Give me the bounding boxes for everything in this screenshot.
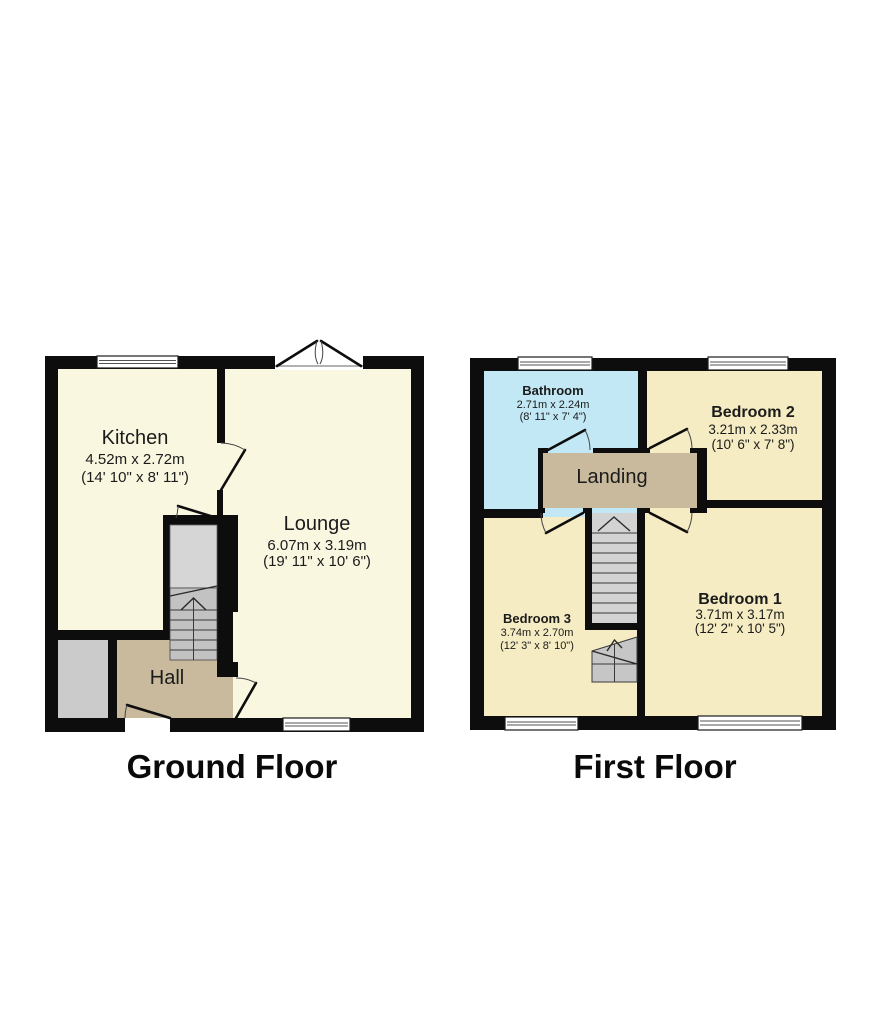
wall xyxy=(470,509,543,518)
kitchen-window-icon xyxy=(97,356,178,368)
wall xyxy=(217,515,238,612)
room-dims-kitchen-imperial: (14' 10" x 8' 11") xyxy=(81,469,189,486)
wall xyxy=(45,718,424,732)
ground-floor-title: Ground Floor xyxy=(127,748,338,785)
room-label-lounge: Lounge xyxy=(284,513,351,535)
room-label-landing: Landing xyxy=(576,466,647,488)
room-dims-bedroom2-metric: 3.21m x 2.33m xyxy=(708,422,797,437)
front-door-opening xyxy=(125,718,170,732)
ground-floor-plan: Kitchen 4.52m x 2.72m (14' 10" x 8' 11")… xyxy=(45,341,424,785)
room-label-bedroom3: Bedroom 3 xyxy=(503,611,571,626)
room-label-hall: Hall xyxy=(150,667,184,689)
wall xyxy=(585,508,592,630)
room-label-kitchen: Kitchen xyxy=(102,427,169,449)
ground-staircase xyxy=(170,525,217,660)
room-dims-bedroom3-imperial: (12' 3" x 8' 10") xyxy=(500,640,574,652)
floorplan-image: Kitchen 4.52m x 2.72m (14' 10" x 8' 11")… xyxy=(0,0,873,1017)
wall xyxy=(163,515,170,640)
room-dims-bedroom1-metric: 3.71m x 3.17m xyxy=(695,607,784,622)
understairs-cupboard xyxy=(170,525,217,588)
wall xyxy=(593,448,650,453)
bedroom2-window-icon xyxy=(708,357,788,370)
wall xyxy=(45,630,163,640)
wall xyxy=(822,358,836,730)
wall xyxy=(637,508,645,716)
wall xyxy=(697,500,836,508)
wall xyxy=(470,358,484,730)
bedroom1-window-icon xyxy=(698,716,802,730)
first-staircase xyxy=(592,513,637,623)
room-label-bedroom2: Bedroom 2 xyxy=(711,404,795,421)
wall xyxy=(217,369,225,443)
wall xyxy=(45,356,58,732)
room-dims-lounge-imperial: (19' 11" x 10' 6") xyxy=(263,553,371,570)
wall xyxy=(217,490,223,515)
wall xyxy=(217,662,238,677)
wall xyxy=(585,623,645,630)
wall xyxy=(108,640,117,718)
wall xyxy=(411,356,424,732)
room-dims-bedroom3-metric: 3.74m x 2.70m xyxy=(501,627,574,639)
room-dims-bedroom2-imperial: (10' 6" x 7' 8") xyxy=(711,437,794,452)
room-dims-kitchen-metric: 4.52m x 2.72m xyxy=(85,451,184,468)
bathroom-window-icon xyxy=(518,357,592,370)
store-floor xyxy=(58,640,108,718)
room-dims-bedroom1-imperial: (12' 2" x 10' 5") xyxy=(695,621,786,636)
wall xyxy=(697,448,707,508)
french-doors-opening xyxy=(275,355,363,370)
room-label-bathroom: Bathroom xyxy=(522,383,583,398)
room-label-bedroom1: Bedroom 1 xyxy=(698,591,782,608)
wall xyxy=(538,448,543,518)
floorplan-drawing: Kitchen 4.52m x 2.72m (14' 10" x 8' 11")… xyxy=(0,0,873,1017)
room-dims-bathroom-imperial: (8' 11" x 7' 4") xyxy=(520,411,587,423)
wall xyxy=(538,508,545,513)
first-floor-plan: Bathroom 2.71m x 2.24m (8' 11" x 7' 4") … xyxy=(470,357,836,785)
first-floor-title: First Floor xyxy=(573,748,736,785)
room-dims-lounge-metric: 6.07m x 3.19m xyxy=(267,537,366,554)
lounge-window-icon xyxy=(283,718,350,731)
bedroom3-window-icon xyxy=(505,717,578,730)
wall xyxy=(638,358,647,453)
room-dims-bathroom-metric: 2.71m x 2.24m xyxy=(517,399,590,411)
wall xyxy=(690,508,707,513)
